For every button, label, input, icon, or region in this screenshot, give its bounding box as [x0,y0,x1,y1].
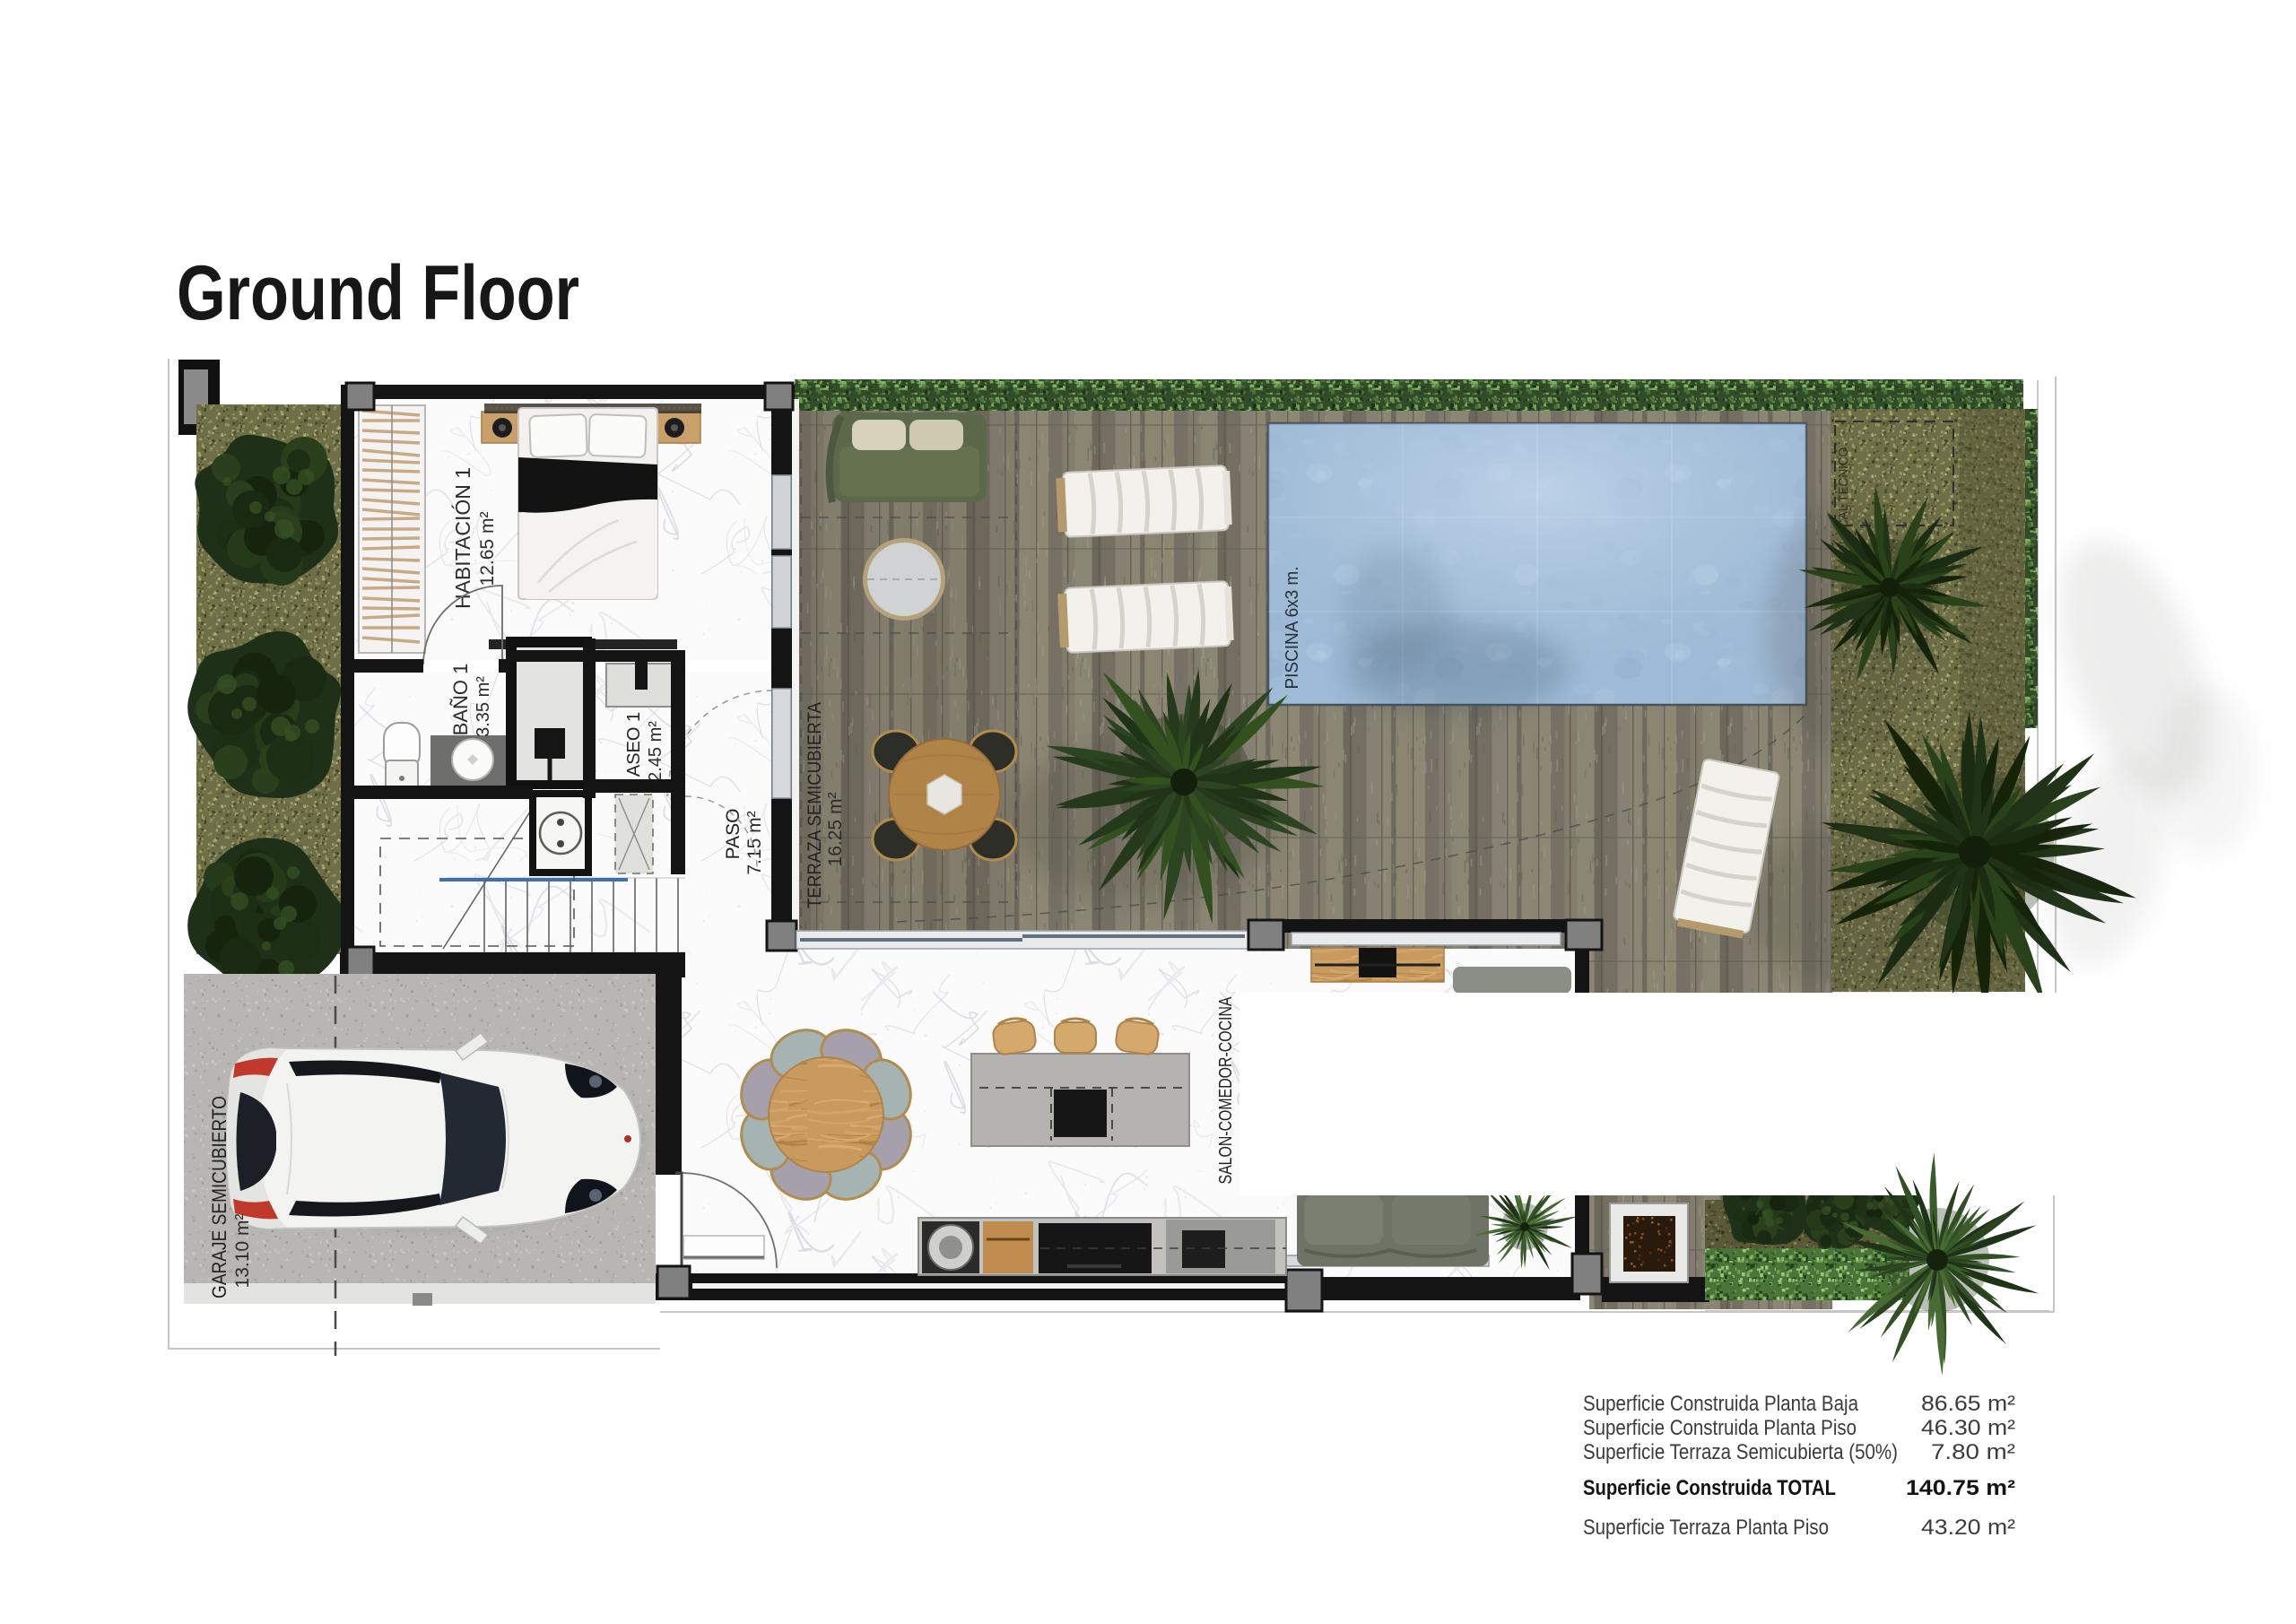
svg-text:BAÑO 1: BAÑO 1 [449,664,472,736]
svg-text:Superficie Terraza Planta Piso: Superficie Terraza Planta Piso [1583,1515,1829,1540]
svg-text:43.20 m²: 43.20 m² [1921,1515,2015,1540]
svg-text:13.10 m²: 13.10 m² [232,1214,253,1289]
svg-text:PASO: PASO [723,809,744,860]
svg-text:Superficie Terraza Semicubiert: Superficie Terraza Semicubierta (50%) [1583,1440,1898,1464]
svg-text:SALON-COMEDOR-COCINA: SALON-COMEDOR-COCINA [1216,996,1236,1185]
svg-text:86.65 m²: 86.65 m² [1921,1392,2015,1416]
svg-text:7.80 m²: 7.80 m² [1931,1440,2015,1464]
svg-text:46.30 m²: 46.30 m² [1921,1416,2015,1440]
svg-text:Superficie Construida TOTAL: Superficie Construida TOTAL [1583,1476,1836,1500]
svg-text:3.35 m²: 3.35 m² [474,676,493,737]
svg-text:Superficie Construida Planta B: Superficie Construida Planta Baja [1583,1392,1859,1416]
svg-text:TERRAZA SEMICUBIERTA: TERRAZA SEMICUBIERTA [804,702,825,908]
svg-text:ASEO 1: ASEO 1 [624,712,644,777]
svg-text:PISCINA 6x3 m.: PISCINA 6x3 m. [1283,567,1302,690]
svg-text:16.25 m²: 16.25 m² [825,793,846,867]
svg-text:Superficie Construida Planta P: Superficie Construida Planta Piso [1583,1416,1857,1440]
svg-text:GARAJE SEMICUBIERTO: GARAJE SEMICUBIERTO [208,1096,230,1298]
svg-text:Ground Floor: Ground Floor [177,250,579,336]
svg-text:7.15 m²: 7.15 m² [744,811,765,874]
svg-text:HABITACIÓN 1: HABITACIÓN 1 [451,467,474,609]
svg-text:12.65 m²: 12.65 m² [477,512,498,586]
svg-text:140.75 m²: 140.75 m² [1906,1476,2015,1500]
svg-text:2.45 m²: 2.45 m² [646,721,665,782]
